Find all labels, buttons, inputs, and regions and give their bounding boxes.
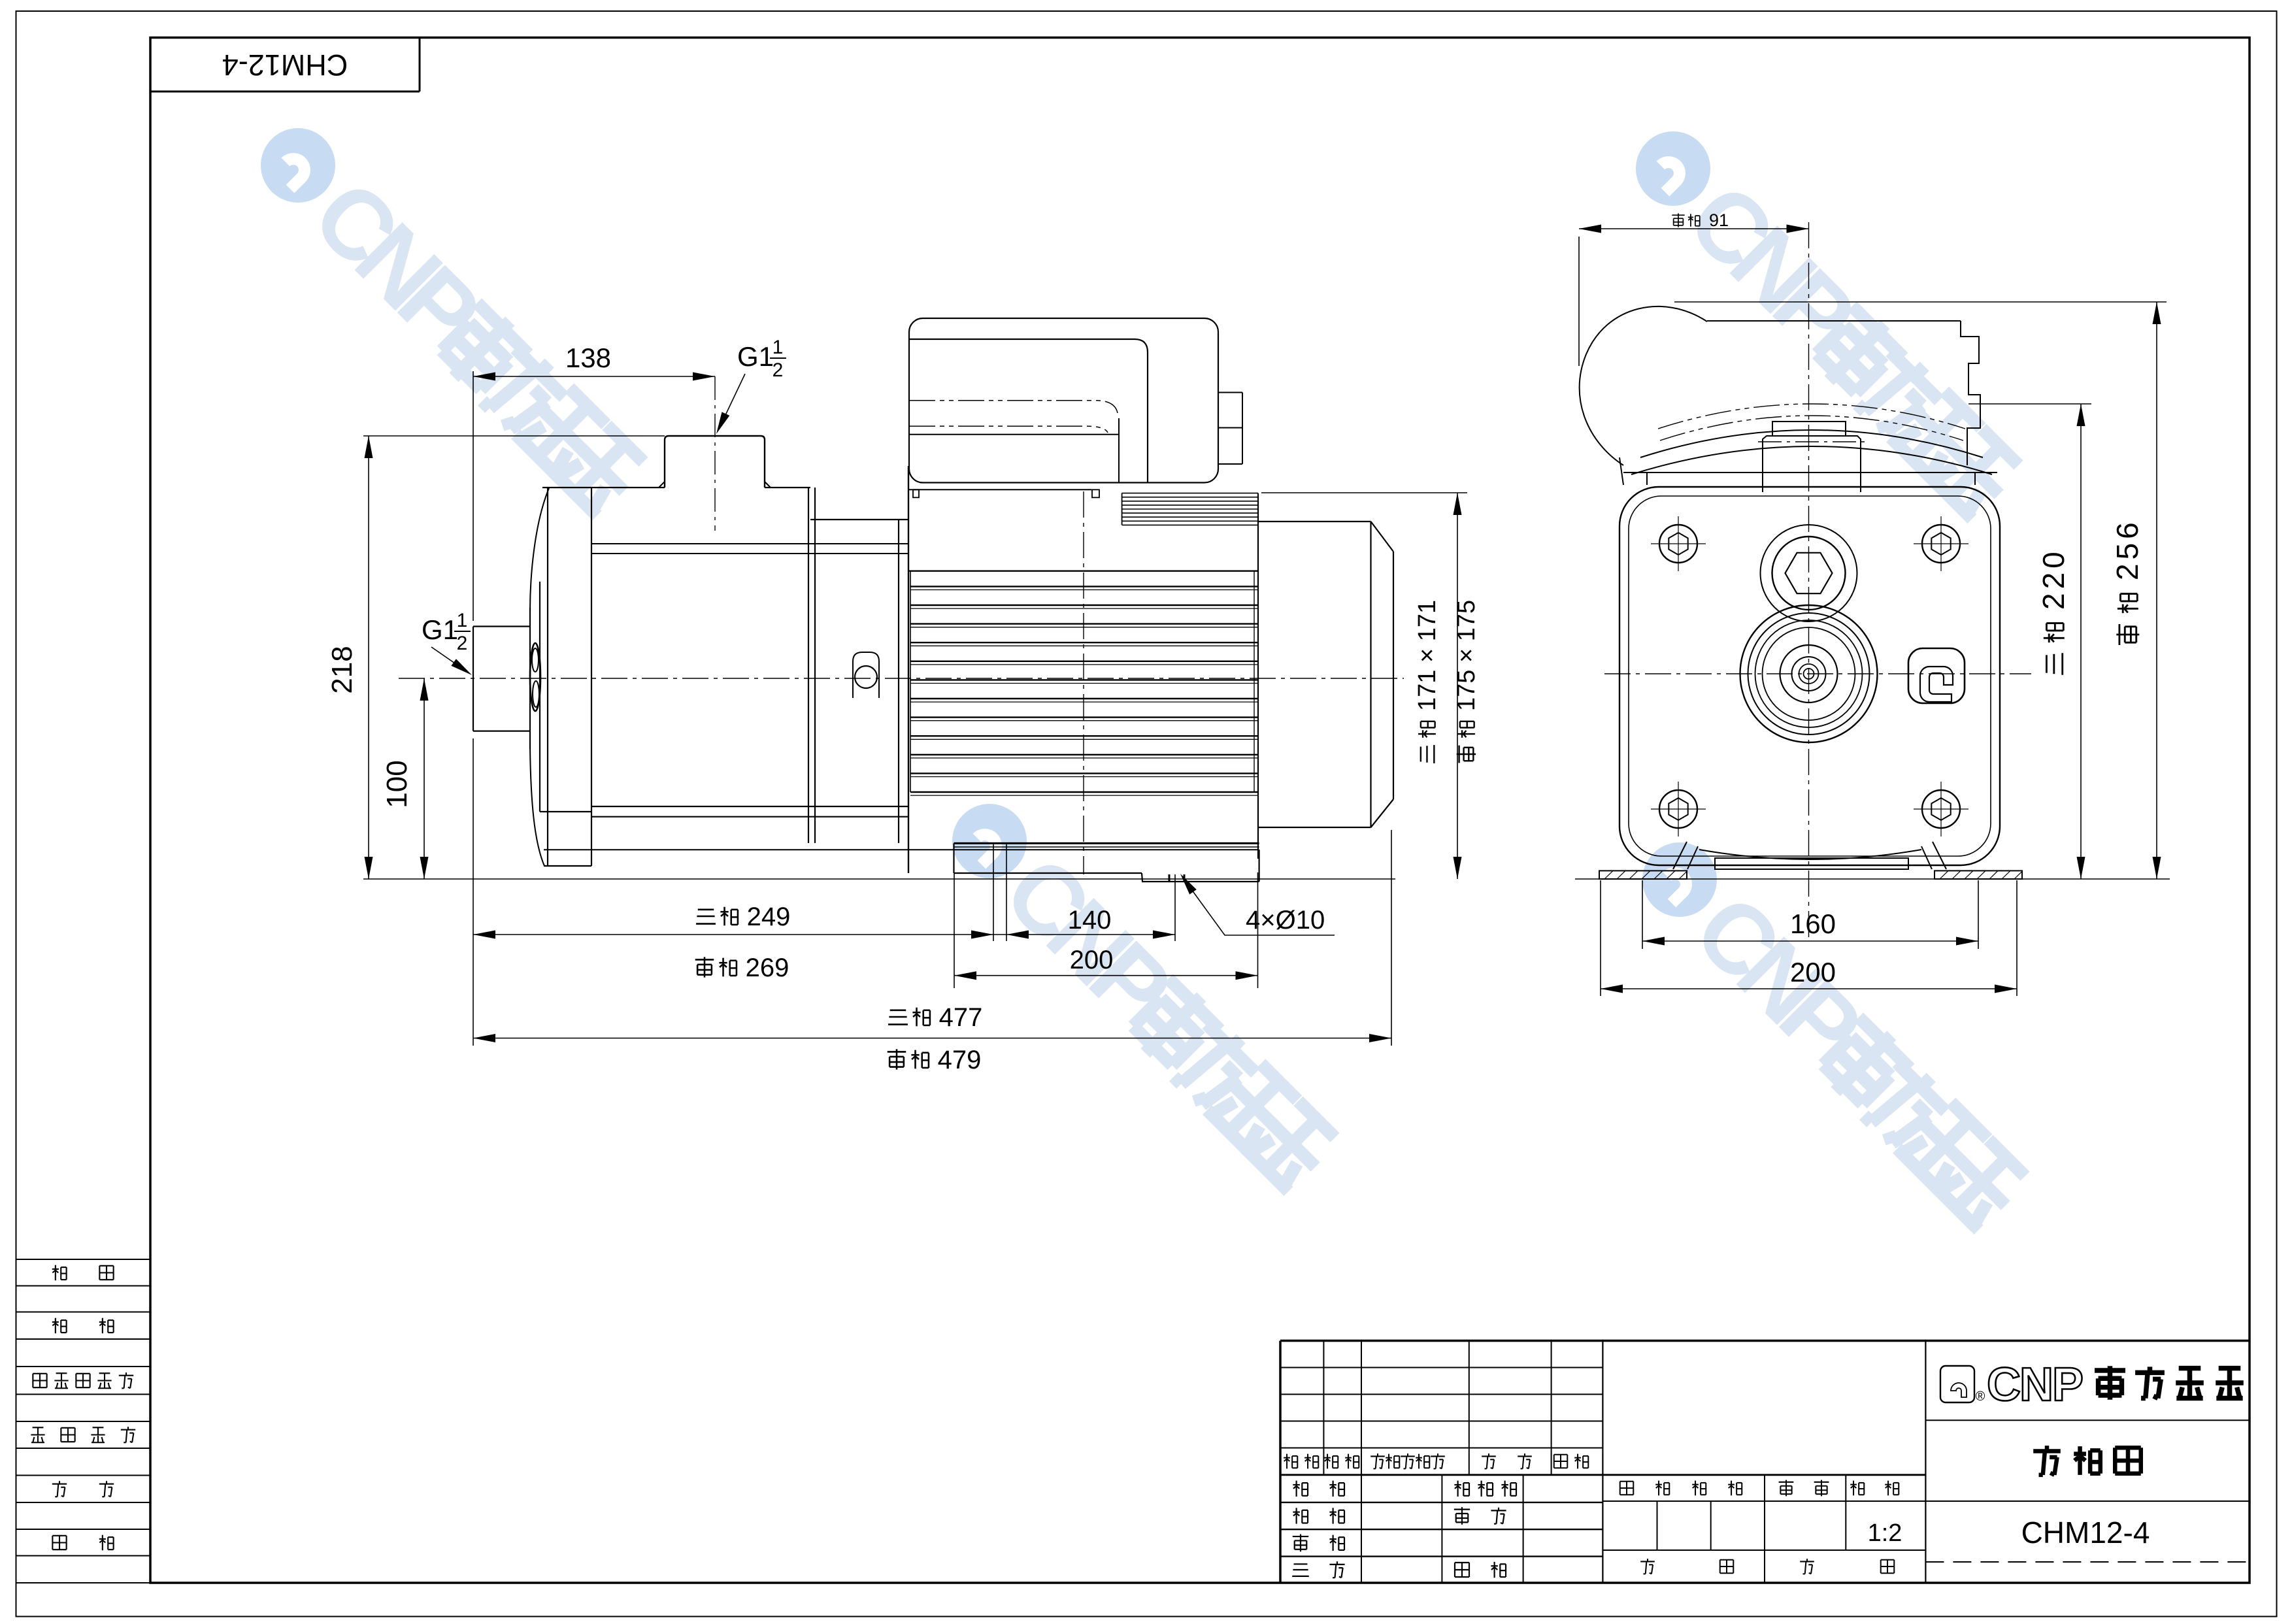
svg-text:2: 2 [457, 633, 468, 654]
svg-text:1:2: 1:2 [1868, 1519, 1902, 1547]
svg-text:100: 100 [381, 760, 413, 808]
svg-text:249: 249 [747, 903, 791, 931]
svg-text:G1: G1 [737, 341, 774, 372]
svg-text:171 × 171: 171 × 171 [1414, 600, 1441, 711]
svg-text:175 × 175: 175 × 175 [1453, 600, 1480, 711]
svg-text:218: 218 [326, 646, 358, 693]
svg-text:220: 220 [2036, 548, 2070, 610]
svg-text:91: 91 [1709, 210, 1729, 230]
svg-text:477: 477 [939, 1003, 983, 1032]
svg-text:200: 200 [1070, 946, 1114, 974]
svg-text:CHM12-4: CHM12-4 [2021, 1516, 2150, 1549]
svg-text:140: 140 [1068, 906, 1112, 935]
svg-text:G1: G1 [422, 614, 458, 645]
svg-text:479: 479 [938, 1046, 982, 1074]
svg-text:256: 256 [2110, 518, 2144, 580]
svg-text:1: 1 [457, 610, 468, 631]
svg-text:4×Ø10: 4×Ø10 [1246, 906, 1325, 935]
svg-text:CHM12-4: CHM12-4 [222, 48, 348, 82]
svg-text:CNP: CNP [1987, 1359, 2082, 1411]
svg-text:269: 269 [746, 953, 789, 982]
svg-text:®: ® [1976, 1389, 1985, 1404]
svg-text:200: 200 [1790, 957, 1836, 987]
svg-text:2: 2 [772, 359, 784, 381]
svg-text:1: 1 [772, 337, 784, 358]
svg-text:160: 160 [1790, 908, 1836, 939]
svg-text:138: 138 [565, 342, 611, 373]
